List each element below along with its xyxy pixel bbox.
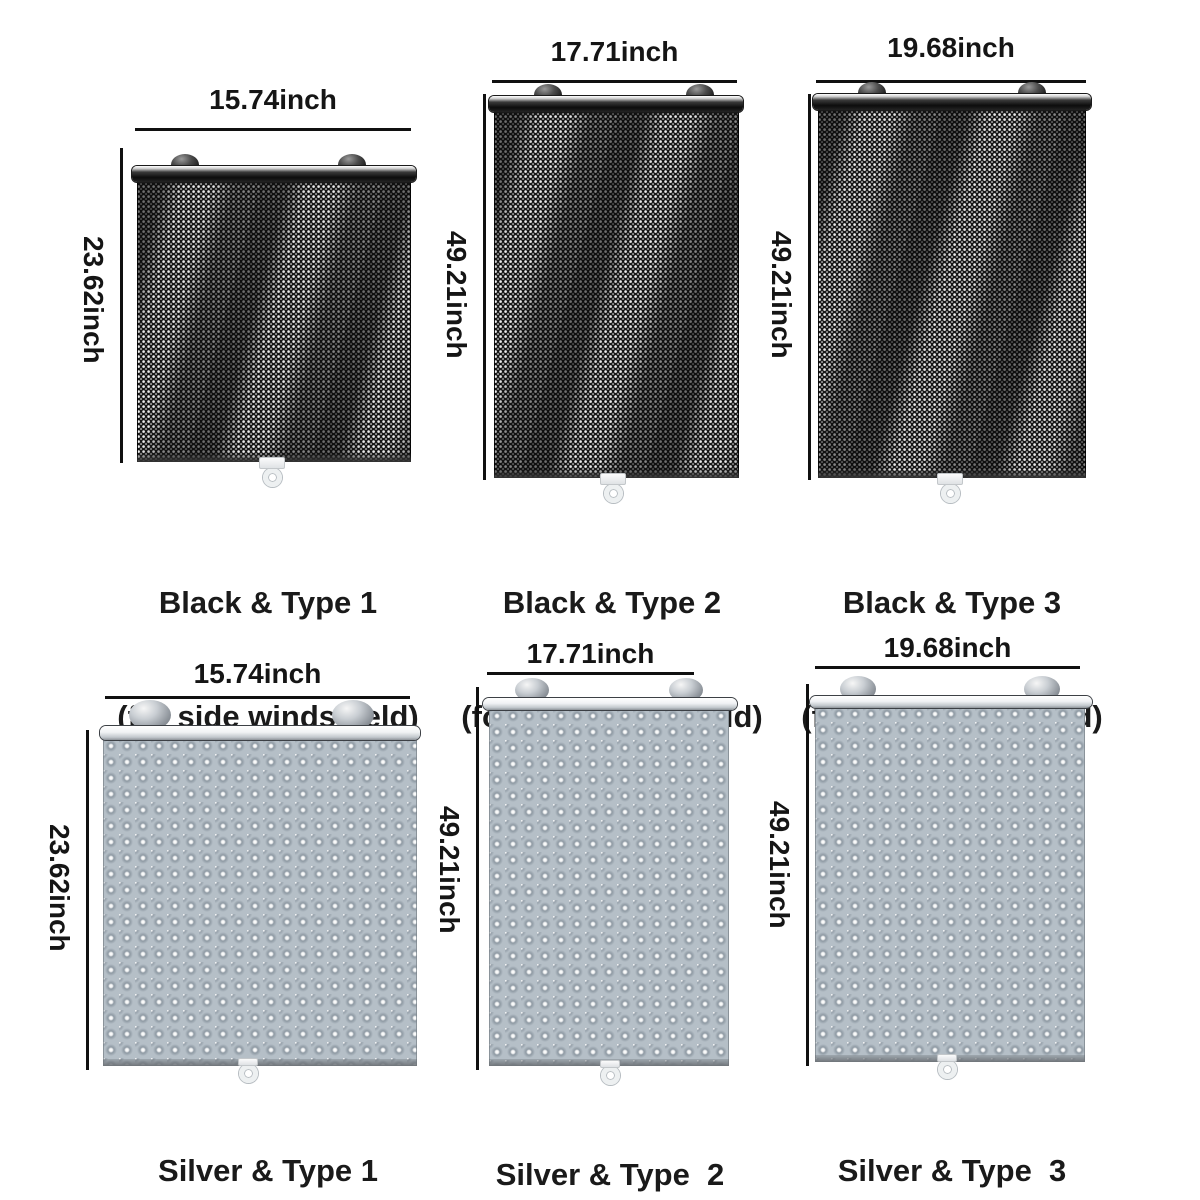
product-caption: Black & Type 1 (for side windshield) <box>88 508 448 812</box>
shade-fabric <box>489 708 729 1066</box>
product-title: Black & Type 2 <box>432 584 792 622</box>
suction-cup-right <box>332 700 374 730</box>
roller-bar <box>489 96 743 112</box>
suction-cup-right <box>686 84 714 102</box>
height-dimension-line <box>806 684 809 1066</box>
product-caption: Black & Type 3 (for side windshield) <box>772 508 1132 812</box>
roller-bar <box>132 166 416 182</box>
product-title: Black & Type 3 <box>772 584 1132 622</box>
pull-ring <box>941 484 960 503</box>
roller-bar <box>813 94 1091 110</box>
product-title: Silver & Type 1 <box>88 1152 448 1190</box>
roller-bar <box>810 696 1092 708</box>
height-dimension-line <box>483 94 486 480</box>
roller-bar <box>483 698 737 710</box>
pull-ring <box>604 484 623 503</box>
shade-fabric <box>103 738 417 1066</box>
shade-fabric <box>815 706 1085 1062</box>
pull-tab <box>238 1058 258 1066</box>
width-dimension-line <box>105 696 410 699</box>
product-black-type-2: 17.71inch 49.21inch Black & Type 2 (for … <box>0 0 1200 1200</box>
suction-cup-right <box>1018 82 1046 100</box>
product-title: Black & Type 1 <box>88 584 448 622</box>
width-dimension-line <box>135 128 411 131</box>
pull-tab <box>937 1054 957 1062</box>
width-dimension-line <box>815 666 1080 669</box>
width-dimension-label: 15.74inch <box>105 658 410 690</box>
shade-fabric <box>494 110 739 478</box>
product-caption: Silver & Type 1 (for side windshield) <box>88 1076 448 1200</box>
product-subtitle: (for side windshield) <box>88 698 448 736</box>
height-dimension-label: 49.21inch <box>438 205 474 385</box>
pull-ring <box>263 468 282 487</box>
width-dimension-line <box>492 80 737 83</box>
height-dimension-line <box>476 687 479 1070</box>
pull-tab <box>600 1060 620 1068</box>
height-dimension-line <box>86 730 89 1070</box>
product-subtitle: (for side windshield) <box>432 698 792 736</box>
product-black-type-3: 19.68inch 49.21inch Black & Type 3 (for … <box>0 0 1200 1200</box>
height-dimension-line <box>120 148 123 463</box>
pull-ring <box>938 1060 957 1079</box>
width-dimension-line <box>816 80 1086 83</box>
height-dimension-label: 49.21inch <box>431 780 467 960</box>
product-caption: Silver & Type 3 (for side windshield) <box>772 1076 1132 1200</box>
suction-cup-left <box>534 84 562 102</box>
suction-cup-left <box>840 676 876 702</box>
product-silver-type-3: 19.68inch 49.21inch Silver & Type 3 (for… <box>0 0 1200 1200</box>
width-dimension-label: 17.71inch <box>487 638 694 670</box>
suction-cup-left <box>515 678 549 702</box>
product-title: Silver & Type 3 <box>772 1152 1132 1190</box>
shade-fabric <box>137 180 411 462</box>
shade-fabric <box>818 108 1086 478</box>
suction-cup-right <box>669 678 703 702</box>
width-dimension-line <box>487 672 694 675</box>
pull-ring <box>239 1064 258 1083</box>
width-dimension-label: 15.74inch <box>135 84 411 116</box>
product-caption: Silver & Type 2 (for side windshield) <box>430 1080 790 1200</box>
pull-tab <box>600 473 626 485</box>
suction-cup-left <box>129 700 171 730</box>
height-dimension-line <box>808 94 811 480</box>
suction-cup-right <box>1024 676 1060 702</box>
product-black-type-1: 15.74inch 23.62inch Black & Type 1 (for … <box>0 0 1200 1200</box>
product-dimension-diagram: 15.74inch 23.62inch Black & Type 1 (for … <box>0 0 1200 1200</box>
product-subtitle: (for side windshield) <box>772 698 1132 736</box>
suction-cup-right <box>338 154 366 172</box>
product-silver-type-1: 15.74inch 23.62inch Silver & Type 1 (for… <box>0 0 1200 1200</box>
height-dimension-label: 49.21inch <box>763 205 799 385</box>
height-dimension-label: 23.62inch <box>41 798 77 978</box>
width-dimension-label: 17.71inch <box>492 36 737 68</box>
product-caption: Black & Type 2 (for side windshield) <box>432 508 792 812</box>
suction-cup-left <box>171 154 199 172</box>
width-dimension-label: 19.68inch <box>816 32 1086 64</box>
height-dimension-label: 49.21inch <box>761 775 797 955</box>
width-dimension-label: 19.68inch <box>815 632 1080 664</box>
suction-cup-left <box>858 82 886 100</box>
pull-tab <box>937 473 963 485</box>
roller-bar <box>100 726 420 740</box>
product-silver-type-2: 17.71inch 49.21inch Silver & Type 2 (for… <box>0 0 1200 1200</box>
pull-ring <box>601 1066 620 1085</box>
product-title: Silver & Type 2 <box>430 1156 790 1194</box>
height-dimension-label: 23.62inch <box>75 210 111 390</box>
pull-tab <box>259 457 285 469</box>
